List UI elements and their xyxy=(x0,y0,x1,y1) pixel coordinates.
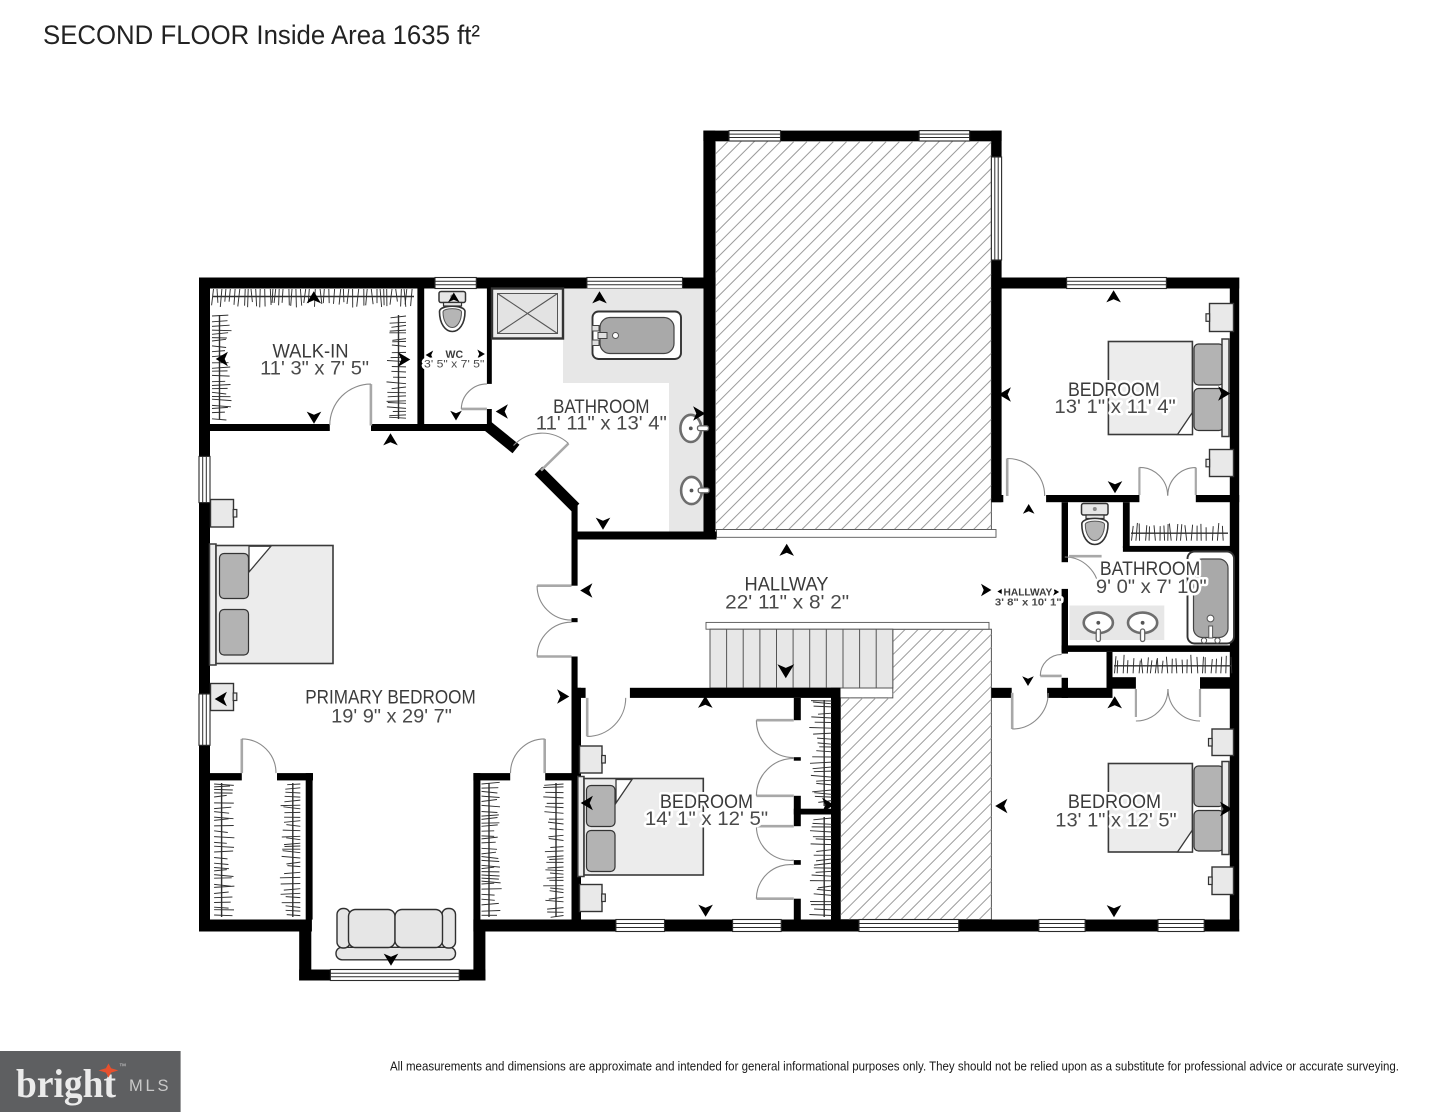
svg-text:SECOND FLOOR Inside Area 1635: SECOND FLOOR Inside Area 1635 ft² xyxy=(43,20,480,50)
svg-text:13' 1" x 12' 5": 13' 1" x 12' 5" xyxy=(1055,811,1176,832)
svg-text:11' 3" x 7' 5": 11' 3" x 7' 5" xyxy=(260,359,369,380)
svg-text:All measurements and dimension: All measurements and dimensions are appr… xyxy=(390,1060,1399,1074)
svg-text:19' 9" x 29' 7": 19' 9" x 29' 7" xyxy=(331,707,452,728)
svg-text:PRIMARY BEDROOM: PRIMARY BEDROOM xyxy=(305,688,476,709)
svg-text:3' 8" x 10' 1": 3' 8" x 10' 1" xyxy=(995,598,1062,609)
svg-text:MLS: MLS xyxy=(129,1077,171,1095)
svg-text:3' 5" x 7' 5": 3' 5" x 7' 5" xyxy=(424,359,484,371)
svg-text:22' 11" x 8' 2": 22' 11" x 8' 2" xyxy=(725,593,849,614)
svg-text:13' 1" x 11' 4": 13' 1" x 11' 4" xyxy=(1054,397,1175,418)
svg-text:14' 1" x 12' 5": 14' 1" x 12' 5" xyxy=(645,809,768,830)
svg-text:bright: bright xyxy=(16,1061,116,1106)
svg-text:11' 11" x 13' 4": 11' 11" x 13' 4" xyxy=(536,414,667,435)
svg-text:9' 0" x 7' 10": 9' 0" x 7' 10" xyxy=(1096,577,1207,598)
svg-text:™: ™ xyxy=(119,1062,127,1071)
